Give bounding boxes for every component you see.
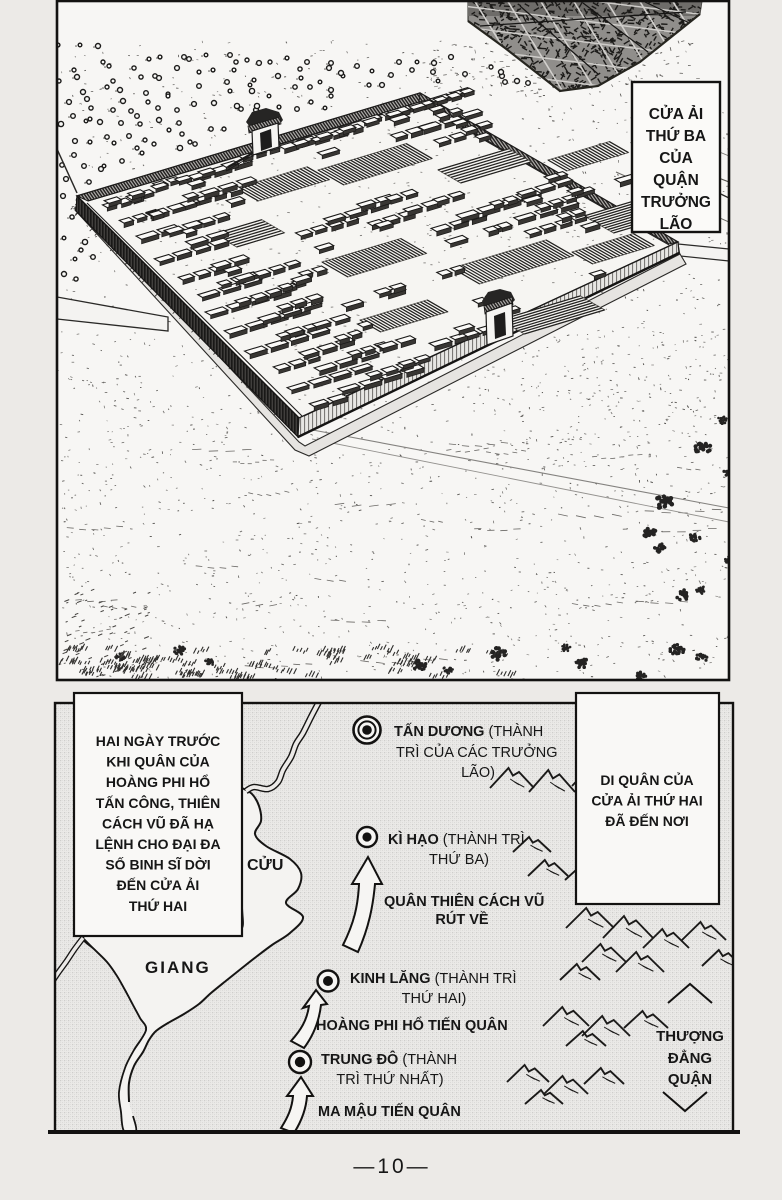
svg-text:LÃO): LÃO) [461, 764, 495, 781]
svg-text:TẤN CÔNG, THIÊN: TẤN CÔNG, THIÊN [96, 794, 220, 811]
svg-text:THỨ HAI: THỨ HAI [129, 897, 187, 914]
svg-text:QUÂN THIÊN CÁCH VŨ: QUÂN THIÊN CÁCH VŨ [384, 892, 544, 910]
svg-text:THỨ HAI): THỨ HAI) [402, 990, 467, 1007]
svg-text:LỆNH CHO ĐẠI ĐA: LỆNH CHO ĐẠI ĐA [95, 835, 220, 852]
svg-text:TRƯỞNG: TRƯỞNG [641, 193, 711, 211]
svg-text:TRUNG ĐÔ (THÀNH: TRUNG ĐÔ (THÀNH [321, 1050, 457, 1068]
svg-text:KHI QUÂN CỦA: KHI QUÂN CỦA [106, 753, 209, 770]
svg-text:THỨ BA): THỨ BA) [429, 851, 489, 868]
svg-text:ĐẲNG: ĐẲNG [668, 1049, 712, 1067]
svg-text:QUẬN: QUẬN [668, 1070, 712, 1088]
svg-text:KÌ HẠO (THÀNH TRÌ: KÌ HẠO (THÀNH TRÌ [388, 831, 525, 848]
svg-text:CỬU: CỬU [247, 855, 283, 874]
svg-text:CÁCH VŨ ĐÃ HẠ: CÁCH VŨ ĐÃ HẠ [102, 814, 214, 831]
svg-text:GIANG: GIANG [145, 958, 211, 977]
svg-text:HOÀNG PHI HỔ TIẾN QUÂN: HOÀNG PHI HỔ TIẾN QUÂN [316, 1016, 508, 1034]
svg-text:SỐ BINH SĨ DỜI: SỐ BINH SĨ DỜI [105, 856, 210, 873]
svg-text:LÃO: LÃO [660, 215, 693, 233]
svg-text:—10—: —10— [353, 1155, 430, 1178]
svg-text:THƯỢNG: THƯỢNG [656, 1028, 724, 1045]
svg-text:RÚT VỀ: RÚT VỀ [435, 910, 489, 928]
svg-text:QUẬN: QUẬN [653, 171, 699, 189]
svg-text:THỨ BA: THỨ BA [646, 127, 706, 145]
svg-text:HOÀNG PHI HỔ: HOÀNG PHI HỔ [106, 773, 210, 790]
svg-text:HAI NGÀY TRƯỚC: HAI NGÀY TRƯỚC [96, 732, 220, 749]
svg-text:TẤN DƯƠNG (THÀNH: TẤN DƯƠNG (THÀNH [394, 723, 543, 740]
svg-text:KINH LĂNG (THÀNH TRÌ: KINH LĂNG (THÀNH TRÌ [350, 970, 517, 987]
svg-text:CỬA ẢI THỨ HAI: CỬA ẢI THỨ HAI [591, 792, 702, 809]
svg-text:DI QUÂN CỦA: DI QUÂN CỦA [600, 771, 693, 788]
svg-text:TRÌ THỨ NHẤT): TRÌ THỨ NHẤT) [336, 1071, 443, 1088]
svg-text:MA MẬU TIẾN QUÂN: MA MẬU TIẾN QUÂN [318, 1102, 461, 1120]
svg-text:ĐẾN CỬA ẢI: ĐẾN CỬA ẢI [117, 876, 200, 893]
svg-text:CỬA ẢI: CỬA ẢI [649, 105, 703, 123]
svg-text:CỦA: CỦA [659, 149, 693, 167]
svg-text:TRÌ CỦA CÁC TRƯỞNG: TRÌ CỦA CÁC TRƯỞNG [396, 743, 558, 761]
svg-text:ĐÃ ĐẾN NƠI: ĐÃ ĐẾN NƠI [605, 812, 689, 829]
